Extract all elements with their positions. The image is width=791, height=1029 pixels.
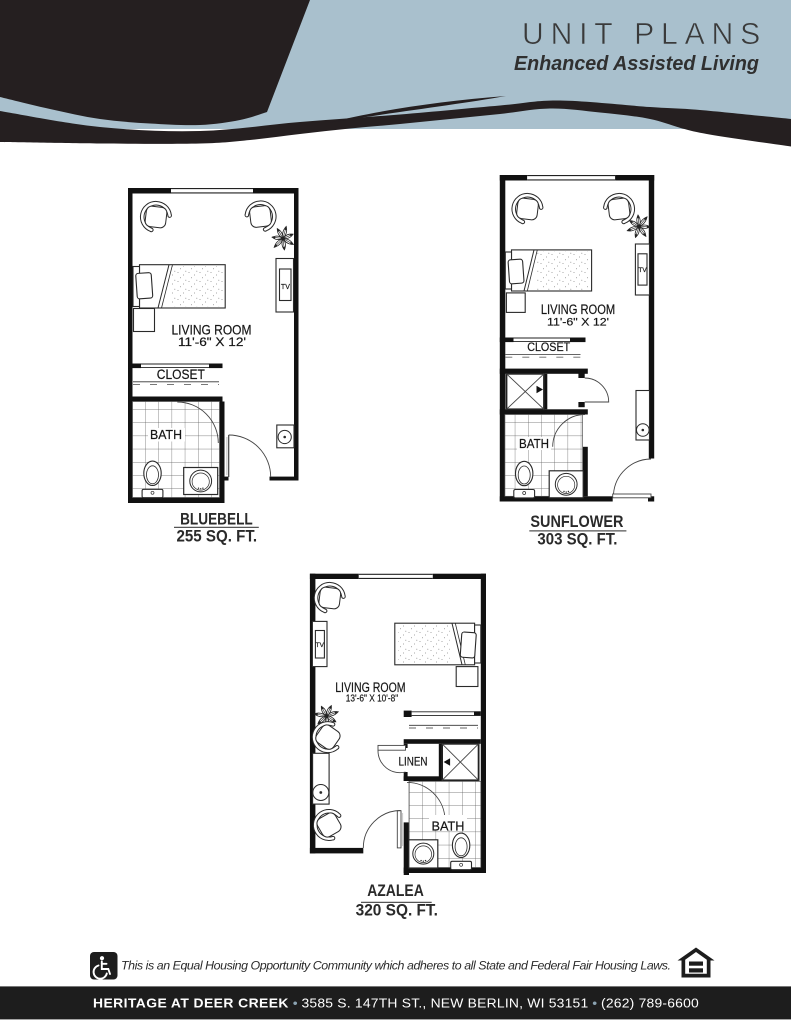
svg-text:TV: TV bbox=[281, 284, 290, 291]
svg-text:Enhanced Assisted Living: Enhanced Assisted Living bbox=[514, 52, 759, 75]
svg-text:BLUEBELL: BLUEBELL bbox=[180, 511, 253, 529]
svg-text:SUNFLOWER: SUNFLOWER bbox=[530, 513, 623, 531]
svg-text:TV: TV bbox=[316, 642, 325, 649]
svg-text:BATH: BATH bbox=[150, 428, 182, 442]
svg-text:BATH: BATH bbox=[432, 819, 465, 834]
svg-text:TV: TV bbox=[638, 267, 647, 274]
svg-text:255 SQ. FT.: 255 SQ. FT. bbox=[177, 527, 258, 545]
svg-text:This is an Equal Housing Oppor: This is an Equal Housing Opportunity Com… bbox=[121, 959, 671, 973]
svg-text:303 SQ. FT.: 303 SQ. FT. bbox=[537, 530, 617, 548]
svg-text:HERITAGE AT DEER CREEK • 358: HERITAGE AT DEER CREEK • 3585 S. 147TH S… bbox=[93, 996, 699, 1011]
svg-text:LINEN: LINEN bbox=[399, 757, 428, 769]
svg-text:11'-6" X 12': 11'-6" X 12' bbox=[178, 337, 246, 349]
svg-text:LIVING ROOM: LIVING ROOM bbox=[172, 322, 252, 338]
svg-text:LIVING ROOM: LIVING ROOM bbox=[541, 302, 615, 317]
svg-text:AZALEA: AZALEA bbox=[367, 882, 424, 900]
svg-text:BATH: BATH bbox=[519, 437, 549, 451]
svg-text:CLOSET: CLOSET bbox=[157, 366, 205, 382]
svg-text:UNIT PLANS: UNIT PLANS bbox=[522, 16, 767, 51]
svg-text:CLOSET: CLOSET bbox=[527, 340, 571, 354]
svg-text:13'-6" X 10'-8": 13'-6" X 10'-8" bbox=[346, 693, 399, 705]
svg-text:11'-6" X 12': 11'-6" X 12' bbox=[547, 317, 609, 329]
svg-text:320 SQ. FT.: 320 SQ. FT. bbox=[356, 902, 438, 920]
